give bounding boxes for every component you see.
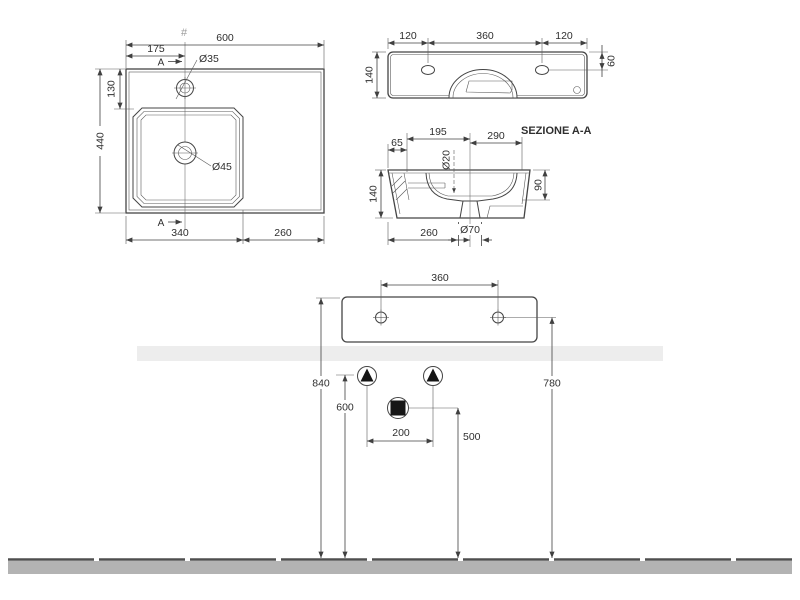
install-basin-outline (342, 297, 537, 342)
dim-plan-shelf-width: 260 (274, 227, 292, 239)
dim-install-supply-spacing: 200 (392, 427, 410, 439)
dim-back-height: 140 (364, 66, 376, 84)
dim-install-drain-height: 500 (463, 431, 481, 443)
dim-section-65: 65 (391, 137, 403, 149)
dim-plan-basin-width: 340 (171, 227, 189, 239)
section-view: SEZIONE A-A 195 290 65 Ø20 140 90 260 Ø7… (368, 125, 592, 247)
dim-install-hole-spacing: 360 (431, 272, 449, 284)
plan-view: # 600 175 A Ø35 Ø45 440 130 A 340 260 (93, 27, 325, 244)
water-supply-symbol-left (358, 367, 377, 386)
washbasin-drawing: # 600 175 A Ø35 Ø45 440 130 A 340 260 (0, 0, 800, 600)
dim-install-hole-height: 780 (543, 378, 561, 390)
section-marker-top: A (158, 58, 165, 69)
water-supply-symbol-right (424, 367, 443, 386)
dim-back-hole-spacing: 360 (476, 30, 494, 42)
mounting-hole-back-right (536, 66, 549, 75)
dim-plan-rim-offset: 130 (106, 80, 118, 98)
floor (8, 560, 792, 575)
waste-drain-symbol (388, 398, 409, 419)
section-profile (388, 170, 530, 218)
installation-view: 360 840 780 600 200 500 (8, 272, 792, 574)
dim-section-height: 140 (368, 185, 380, 203)
dim-back-right-offset: 120 (555, 30, 573, 42)
dim-section-side-hole: Ø20 (441, 150, 453, 170)
back-view: 120 360 120 140 60 (364, 30, 618, 98)
floor-band (8, 561, 792, 574)
wall-band (137, 346, 663, 361)
dim-section-260: 260 (420, 227, 438, 239)
dim-plan-width: 600 (216, 32, 234, 44)
dim-install-supply-height: 600 (336, 402, 354, 414)
dim-plan-drain-hole: Ø45 (212, 161, 232, 173)
dim-plan-tap-hole: Ø35 (199, 53, 219, 65)
technical-drawing-sheet: # 600 175 A Ø35 Ø45 440 130 A 340 260 (0, 0, 800, 600)
dim-install-rim-height: 840 (312, 378, 330, 390)
dim-back-left-offset: 120 (399, 30, 417, 42)
section-marker-bottom: A (158, 218, 165, 229)
section-title: SEZIONE A-A (521, 125, 592, 137)
mounting-hole-back-left (422, 66, 435, 75)
dim-section-290: 290 (487, 130, 505, 142)
dim-back-hole-drop: 60 (606, 55, 618, 67)
dim-section-195: 195 (429, 126, 447, 138)
dim-section-bowl-depth: 90 (533, 179, 545, 191)
dim-section-drain-hole: Ø70 (460, 224, 480, 236)
dim-plan-depth: 440 (95, 132, 107, 150)
dim-plan-tap-offset: 175 (147, 43, 165, 55)
placement-hash-mark: # (181, 27, 188, 39)
